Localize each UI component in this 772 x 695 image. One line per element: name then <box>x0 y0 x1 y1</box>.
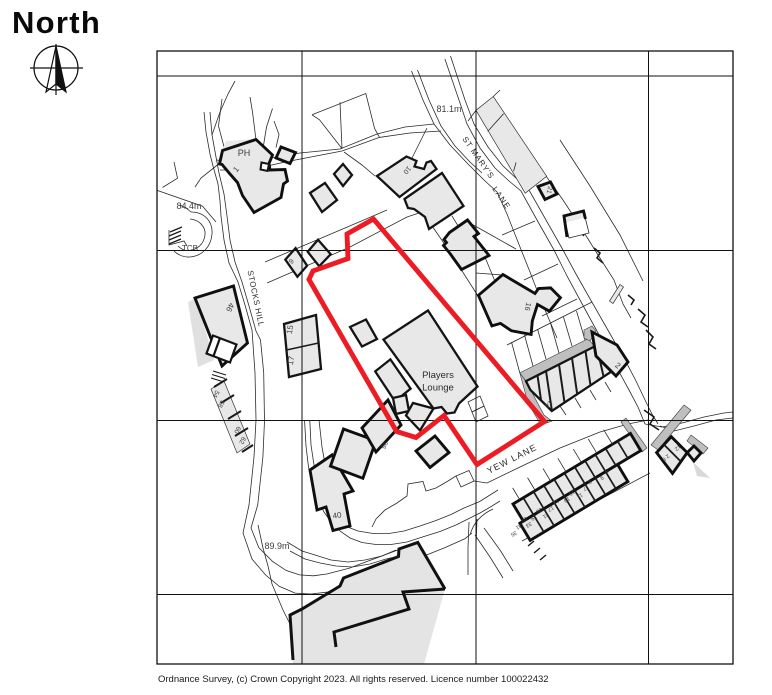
svg-text:TCB: TCB <box>182 244 198 253</box>
svg-text:89.9m: 89.9m <box>264 541 289 551</box>
svg-text:Lounge: Lounge <box>422 383 454 394</box>
svg-text:Players: Players <box>422 370 454 381</box>
svg-text:North: North <box>12 5 101 40</box>
svg-text:81.1m: 81.1m <box>436 104 461 114</box>
svg-text:PH: PH <box>238 148 251 158</box>
svg-text:40: 40 <box>332 510 343 520</box>
svg-text:Ordnance Survey, (c) Crown Cop: Ordnance Survey, (c) Crown Copyright 202… <box>158 674 549 685</box>
svg-text:84.4m: 84.4m <box>176 201 201 211</box>
